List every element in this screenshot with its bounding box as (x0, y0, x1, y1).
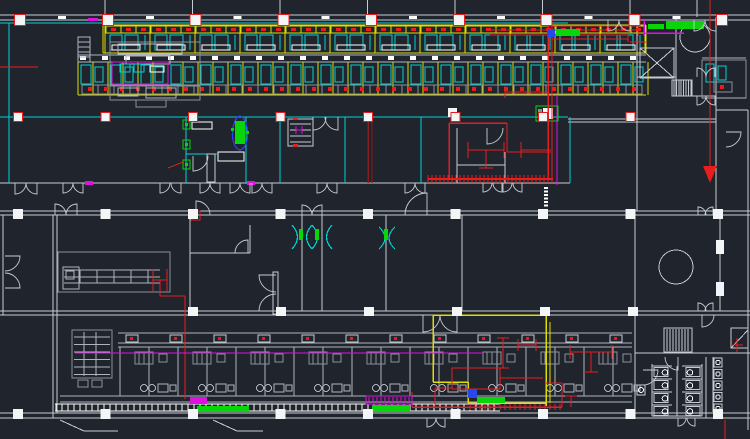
dark-red-riser (368, 120, 372, 183)
cad-viewport (0, 0, 750, 439)
magenta-lines (75, 20, 684, 404)
production-line-bottom (55, 330, 640, 411)
floor-plan-svg (0, 0, 750, 439)
sanitary-block (637, 328, 722, 416)
production-line-top (78, 25, 746, 98)
